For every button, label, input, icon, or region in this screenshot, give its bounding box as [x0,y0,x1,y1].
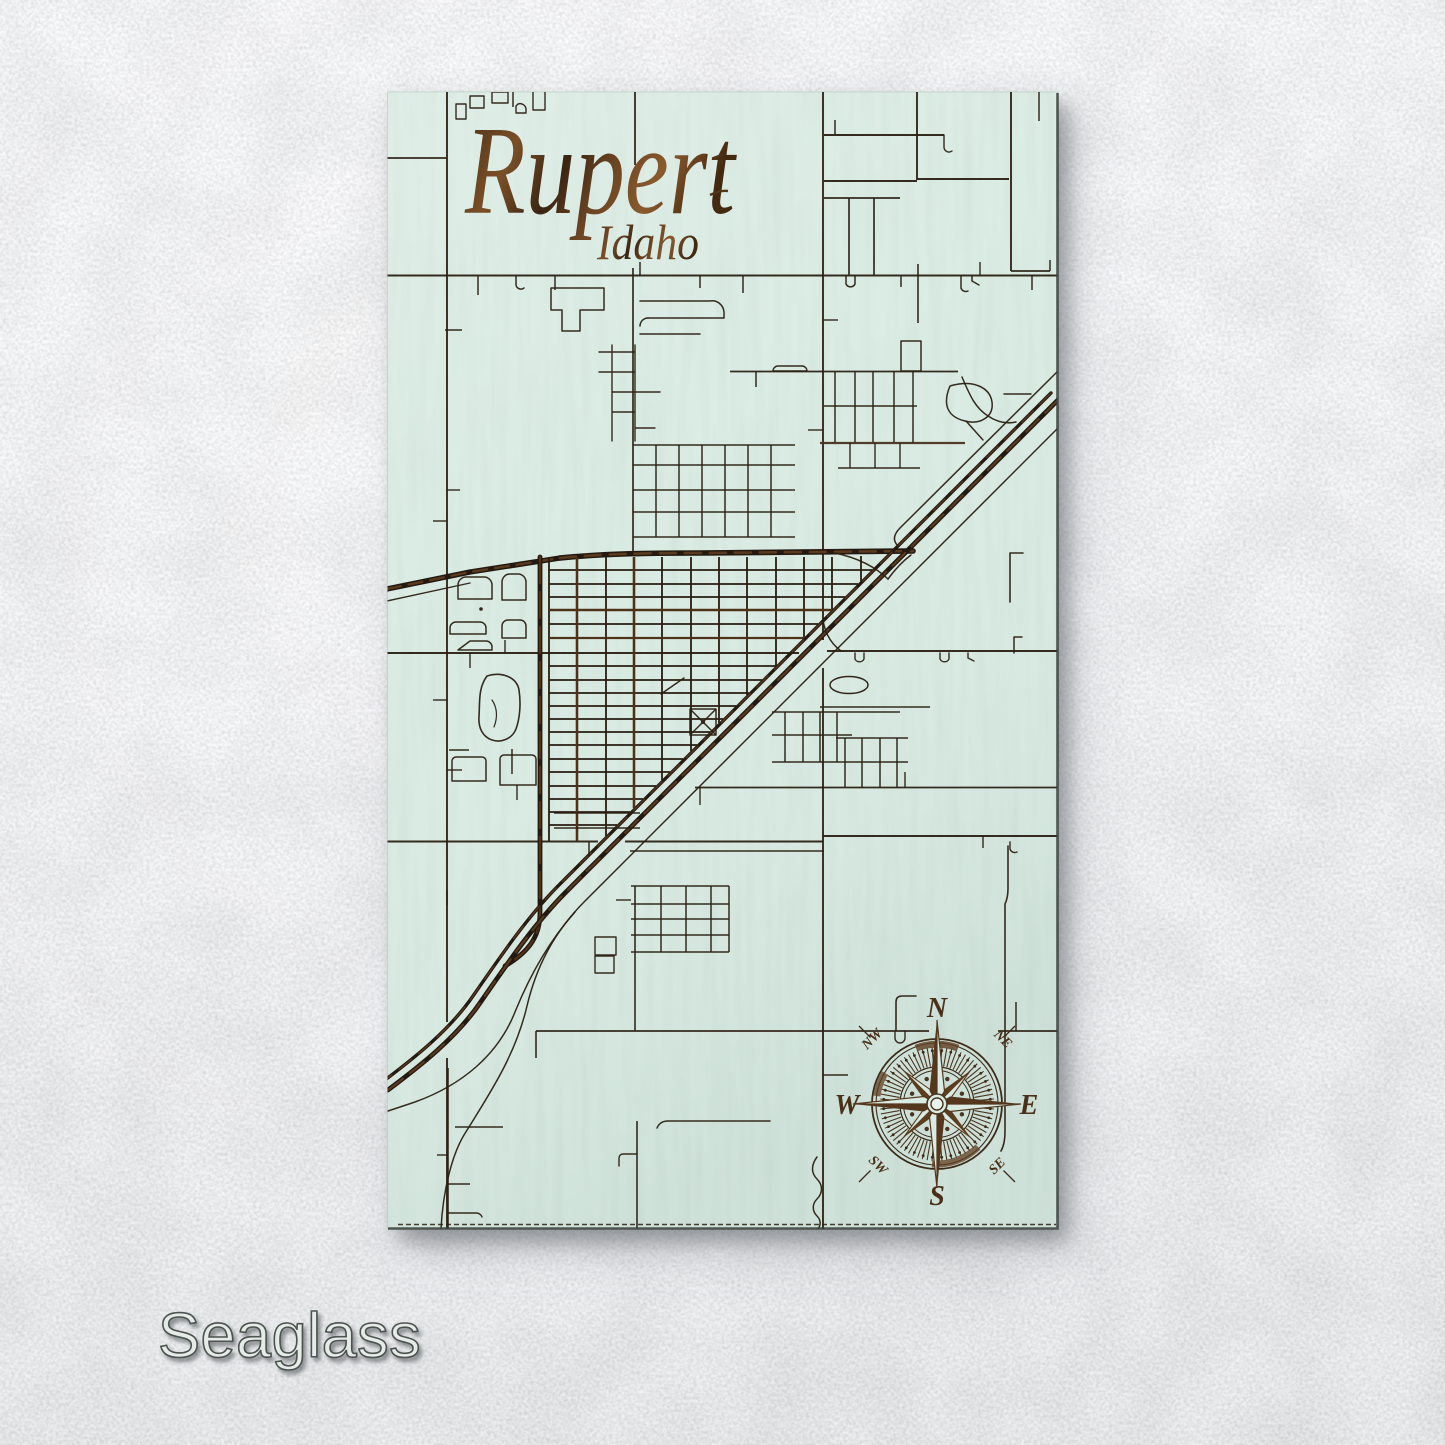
svg-text:Seaglass: Seaglass [158,1301,421,1371]
svg-text:N: N [926,993,949,1024]
svg-text:E: E [1019,1090,1039,1121]
svg-text:Idaho: Idaho [596,214,699,270]
svg-text:S: S [929,1181,945,1212]
svg-text:W: W [835,1090,862,1121]
